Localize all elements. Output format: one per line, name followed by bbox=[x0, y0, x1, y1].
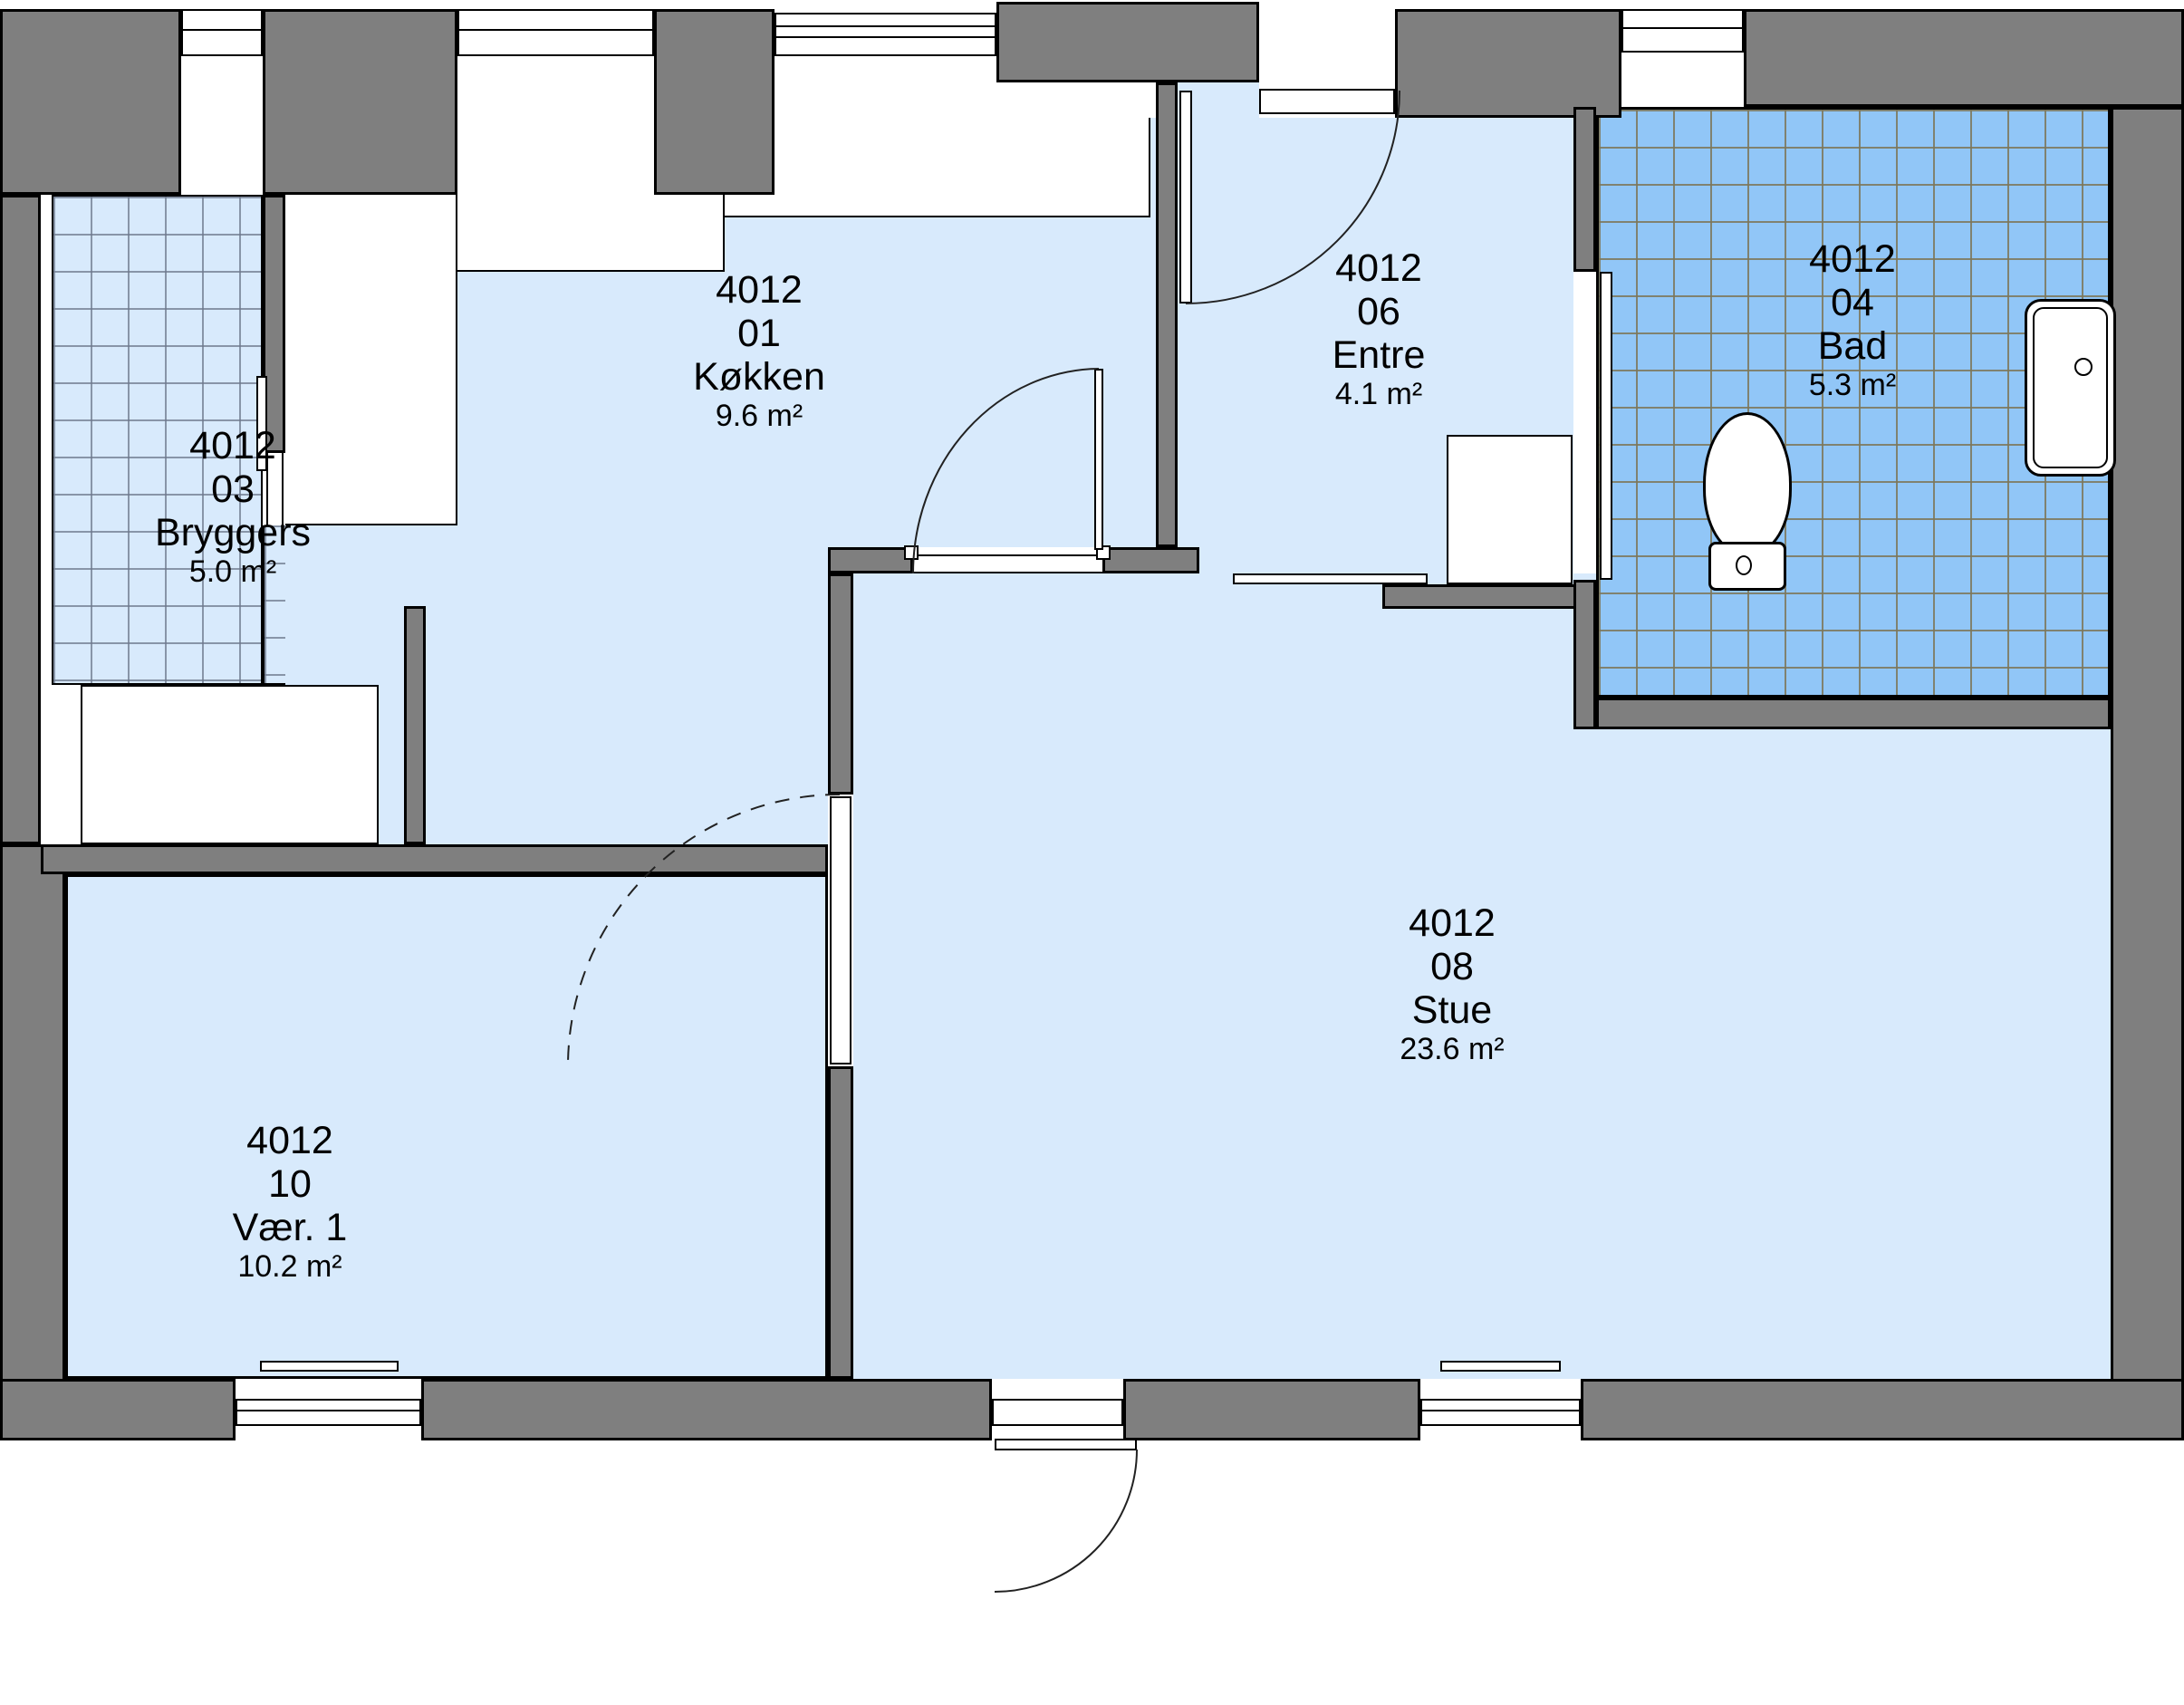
room-label-kokken: 4012 01 Køkken 9.6 m² bbox=[560, 268, 958, 434]
room-number: 4012 bbox=[91, 1119, 489, 1162]
vaer1-door-arc bbox=[568, 795, 840, 1066]
room-label-bad: 4012 04 Bad 5.3 m² bbox=[1653, 237, 2052, 403]
room-name: Vær. 1 bbox=[91, 1206, 489, 1249]
room-label-stue: 4012 08 Stue 23.6 m² bbox=[1253, 901, 1651, 1067]
room-code: 03 bbox=[34, 467, 432, 511]
room-code: 10 bbox=[91, 1162, 489, 1206]
room-name: Bryggers bbox=[34, 511, 432, 554]
room-area: 10.2 m² bbox=[91, 1249, 489, 1284]
room-number: 4012 bbox=[34, 424, 432, 467]
room-area: 4.1 m² bbox=[1179, 377, 1578, 411]
room-number: 4012 bbox=[1179, 246, 1578, 290]
room-label-entre: 4012 06 Entre 4.1 m² bbox=[1179, 246, 1578, 412]
room-name: Bad bbox=[1653, 324, 2052, 368]
floor-plan: 4012 03 Bryggers 5.0 m² 4012 01 Køkken 9… bbox=[0, 0, 2184, 1705]
room-code: 04 bbox=[1653, 281, 2052, 324]
room-area: 5.0 m² bbox=[34, 554, 432, 589]
room-number: 4012 bbox=[1653, 237, 2052, 281]
room-name: Entre bbox=[1179, 333, 1578, 377]
room-area: 5.3 m² bbox=[1653, 368, 2052, 402]
room-label-vaer1: 4012 10 Vær. 1 10.2 m² bbox=[91, 1119, 489, 1285]
room-number: 4012 bbox=[560, 268, 958, 312]
room-name: Køkken bbox=[560, 355, 958, 399]
room-code: 01 bbox=[560, 312, 958, 355]
patio-door-arc bbox=[995, 1450, 1137, 1592]
room-number: 4012 bbox=[1253, 901, 1651, 945]
room-label-bryggers: 4012 03 Bryggers 5.0 m² bbox=[34, 424, 432, 590]
room-code: 08 bbox=[1253, 945, 1651, 988]
room-name: Stue bbox=[1253, 988, 1651, 1032]
room-area: 9.6 m² bbox=[560, 399, 958, 433]
room-area: 23.6 m² bbox=[1253, 1032, 1651, 1066]
room-code: 06 bbox=[1179, 290, 1578, 333]
